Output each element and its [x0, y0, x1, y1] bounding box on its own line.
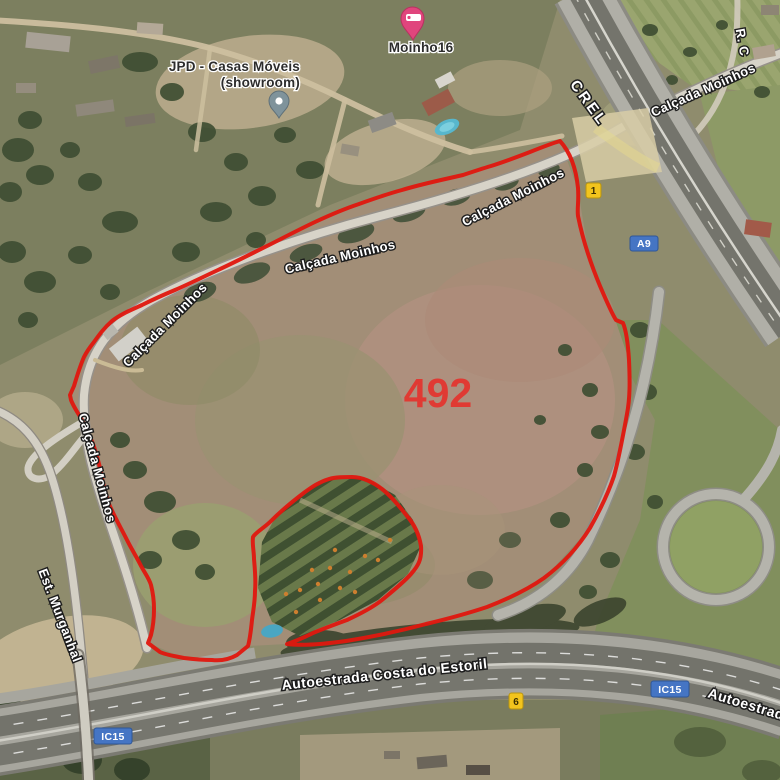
shield-a9: A9: [630, 236, 658, 251]
shield-ic15-right-text: IC15: [658, 684, 681, 696]
shield-n6-text: 6: [513, 697, 519, 708]
shield-a9-text: A9: [637, 238, 651, 250]
parcel-area-label[interactable]: 492: [404, 370, 472, 416]
shield-ic15-left: IC15: [94, 728, 132, 744]
shield-ic15-left-text: IC15: [101, 731, 124, 743]
shield-n1: 1: [586, 183, 601, 198]
shield-n6: 6: [509, 693, 523, 709]
shield-ic15-right: IC15: [651, 681, 689, 697]
place-label-jpd-line2[interactable]: (showroom): [221, 75, 300, 90]
map-svg: 492 Calçada Moinhos Calçada Moinhos Calç…: [0, 0, 780, 780]
pin-dot-icon: [275, 97, 282, 104]
satellite-map-canvas[interactable]: 492 Calçada Moinhos Calçada Moinhos Calç…: [0, 0, 780, 780]
shield-n1-text: 1: [591, 186, 597, 197]
place-label-jpd-line1[interactable]: JPD - Casas Móveis: [169, 59, 300, 74]
place-label-moinho16[interactable]: Moinho16: [389, 40, 454, 55]
